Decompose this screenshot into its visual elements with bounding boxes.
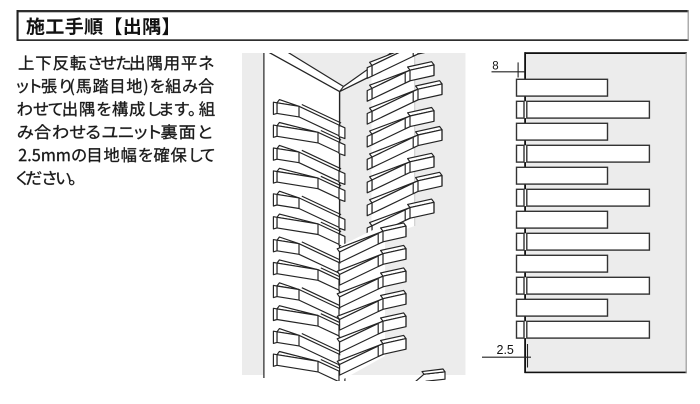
- svg-text:2.5: 2.5: [497, 343, 514, 357]
- svg-text:8: 8: [492, 61, 498, 73]
